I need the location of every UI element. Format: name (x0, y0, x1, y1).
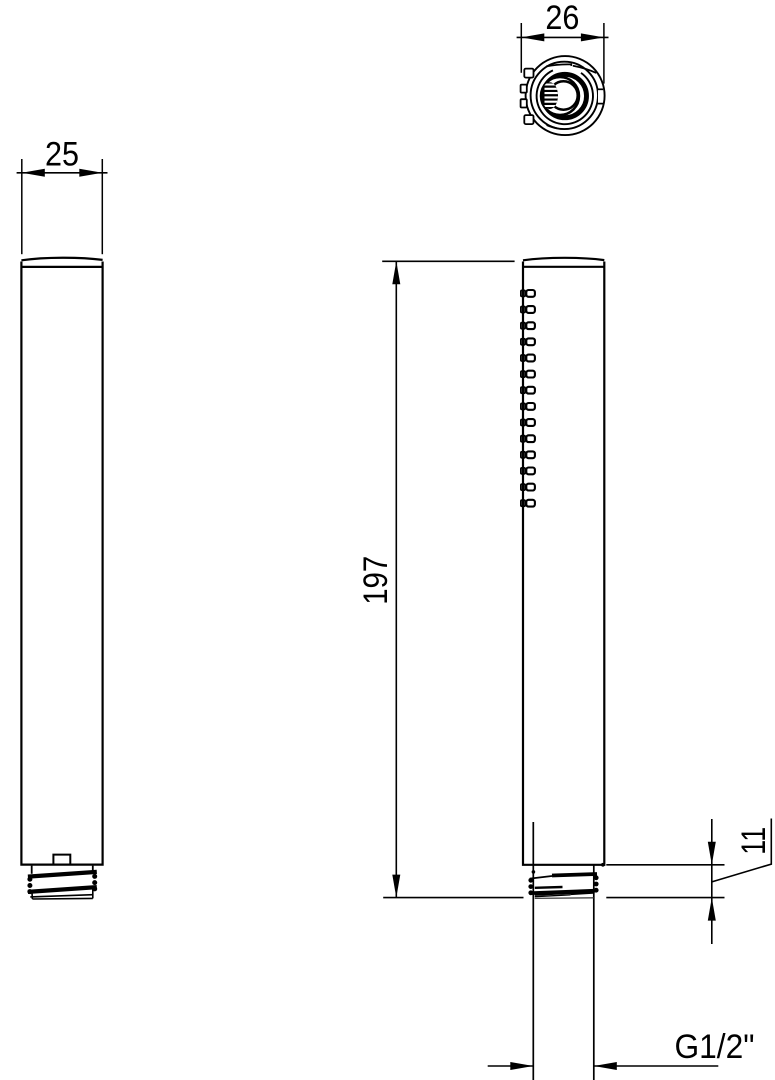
svg-text:197: 197 (357, 556, 395, 605)
svg-text:25: 25 (45, 135, 79, 173)
svg-text:G1/2": G1/2" (675, 1028, 755, 1066)
svg-text:26: 26 (545, 0, 579, 37)
svg-text:11: 11 (735, 827, 773, 855)
